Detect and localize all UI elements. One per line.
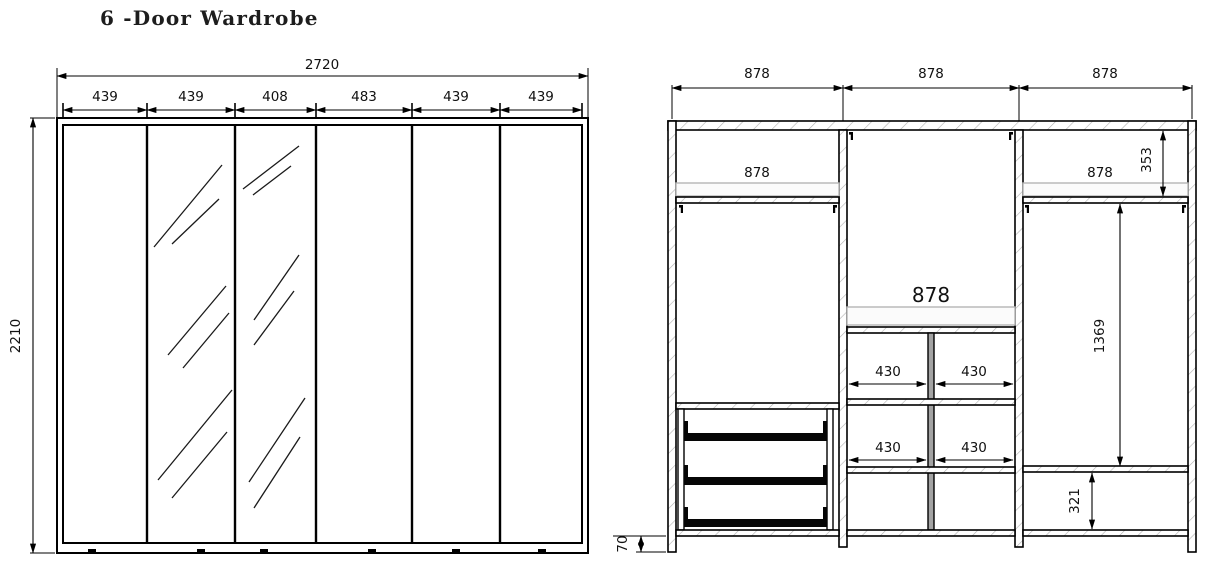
- door-width-label-2: 439: [178, 89, 204, 105]
- right-shelf-width-label: 878: [1087, 165, 1113, 181]
- left-mid-shelf: [676, 403, 839, 409]
- door-width-label-6: 439: [528, 89, 554, 105]
- door-width-label-3: 408: [262, 89, 288, 105]
- left-hanging-rail-hooks: [679, 205, 837, 213]
- left-bottom-panel: [676, 530, 839, 536]
- middle-shelf-1: [847, 327, 1015, 333]
- dim-section-widths: 878 878 878: [672, 66, 1192, 128]
- overall-width-label: 2720: [305, 57, 339, 73]
- left-section: 878: [676, 165, 839, 536]
- left-shelf-width-label: 878: [744, 165, 770, 181]
- right-mid-shelf: [1023, 466, 1188, 472]
- hanging-height-label: 1369: [1092, 319, 1108, 353]
- cubby-row2-label-2: 430: [961, 440, 987, 456]
- top-compartment-height-label: 353: [1139, 147, 1155, 173]
- dim-plinth-height: 70: [613, 535, 666, 552]
- internal-view: 878 878 878 878: [613, 66, 1196, 553]
- middle-hanging-width-label: 878: [912, 283, 950, 307]
- bottom-compartment-height-label: 321: [1067, 488, 1083, 514]
- middle-center-divider: [928, 333, 934, 530]
- page-title: 6 -Door Wardrobe: [100, 6, 319, 30]
- right-hanging-rail-hooks: [1025, 205, 1186, 213]
- section-width-label-2: 878: [918, 66, 944, 82]
- plinth-height-label: 70: [615, 535, 631, 552]
- door-width-label-4: 483: [351, 89, 377, 105]
- left-shelf-band: [676, 183, 839, 196]
- door-width-label-1: 439: [92, 89, 118, 105]
- drawer-unit: [678, 409, 833, 530]
- middle-hanging-rail-hooks: [849, 132, 1013, 140]
- cubby-row2-label-1: 430: [875, 440, 901, 456]
- section-width-label-3: 878: [1092, 66, 1118, 82]
- middle-shelf-band: [847, 307, 1015, 325]
- section-width-label-1: 878: [744, 66, 770, 82]
- cubby-row1-label-2: 430: [961, 364, 987, 380]
- dim-door-widths: 439 439 408 483 439 439: [63, 89, 582, 117]
- left-top-shelf: [676, 197, 839, 203]
- cubby-row1-label-1: 430: [875, 364, 901, 380]
- right-top-shelf: [1023, 197, 1188, 203]
- wardrobe-drawing: 6 -Door Wardrobe 2720 439 439 408: [0, 0, 1225, 581]
- middle-shelf-3: [847, 467, 1015, 473]
- overall-height-label: 2210: [8, 319, 24, 353]
- wardrobe-body: [57, 118, 588, 553]
- technical-drawing-canvas: 6 -Door Wardrobe 2720 439 439 408: [0, 0, 1225, 581]
- right-bottom-panel: [1023, 530, 1188, 536]
- front-view: 2720 439 439 408 483 439 439: [8, 57, 588, 553]
- door-width-label-5: 439: [443, 89, 469, 105]
- dim-overall-width: 2720: [57, 57, 588, 117]
- dim-bottom-compartment-height: 321: [1067, 473, 1092, 529]
- middle-bottom-panel: [847, 530, 1015, 536]
- dim-overall-height: 2210: [8, 118, 55, 553]
- middle-shelf-2: [847, 399, 1015, 405]
- dim-hanging-height: 1369: [1092, 204, 1120, 466]
- right-section: 878 353 1369 321: [1023, 131, 1188, 536]
- middle-section: 878 430 430 430 430: [847, 132, 1015, 536]
- drawer-fronts: [684, 421, 827, 527]
